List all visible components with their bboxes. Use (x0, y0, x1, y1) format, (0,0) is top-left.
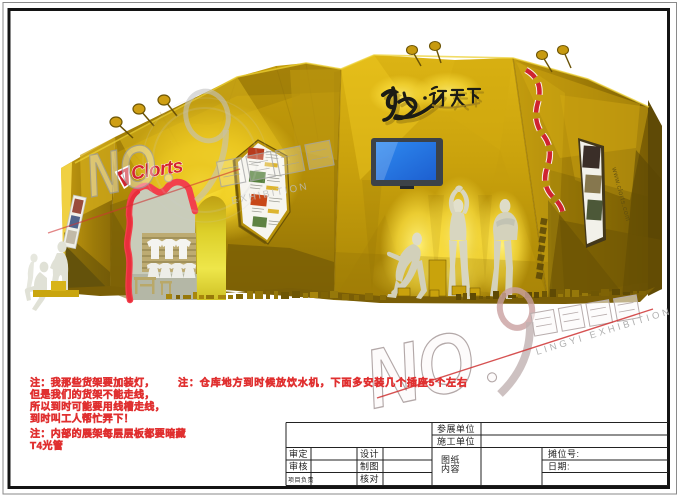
svg-text:参展单位: 参展单位 (437, 423, 475, 434)
svg-text:审定: 审定 (289, 448, 308, 459)
svg-text:施工单位: 施工单位 (437, 436, 475, 447)
svg-text:制图: 制图 (360, 461, 379, 472)
svg-text:项目负责: 项目负责 (288, 476, 314, 484)
svg-text:T4光管: T4光管 (30, 439, 63, 452)
svg-text:核对: 核对 (360, 473, 379, 484)
svg-text:注：仓库地方到时候放饮水机，下面多安装几个插座5个左右: 注：仓库地方到时候放饮水机，下面多安装几个插座5个左右 (178, 376, 468, 389)
svg-text:注：我那些货架要加装灯，: 注：我那些货架要加装灯， (30, 376, 155, 389)
svg-text:设计: 设计 (360, 448, 379, 459)
svg-text:到时叫工人帮忙弄下！: 到时叫工人帮忙弄下！ (30, 412, 134, 425)
svg-text:日期:: 日期: (548, 462, 570, 472)
svg-text:但是我们的货架不能走线，: 但是我们的货架不能走线， (29, 388, 155, 401)
svg-text:摊位号:: 摊位号: (548, 448, 580, 459)
svg-text:所以到时可能要用线槽走线，: 所以到时可能要用线槽走线， (30, 400, 165, 413)
svg-text:内容: 内容 (441, 463, 460, 474)
svg-text:注：内部的展架每层层板都要暗藏: 注：内部的展架每层层板都要暗藏 (30, 427, 186, 440)
svg-text:NO: NO (80, 131, 161, 210)
svg-text:审核: 审核 (289, 461, 308, 472)
